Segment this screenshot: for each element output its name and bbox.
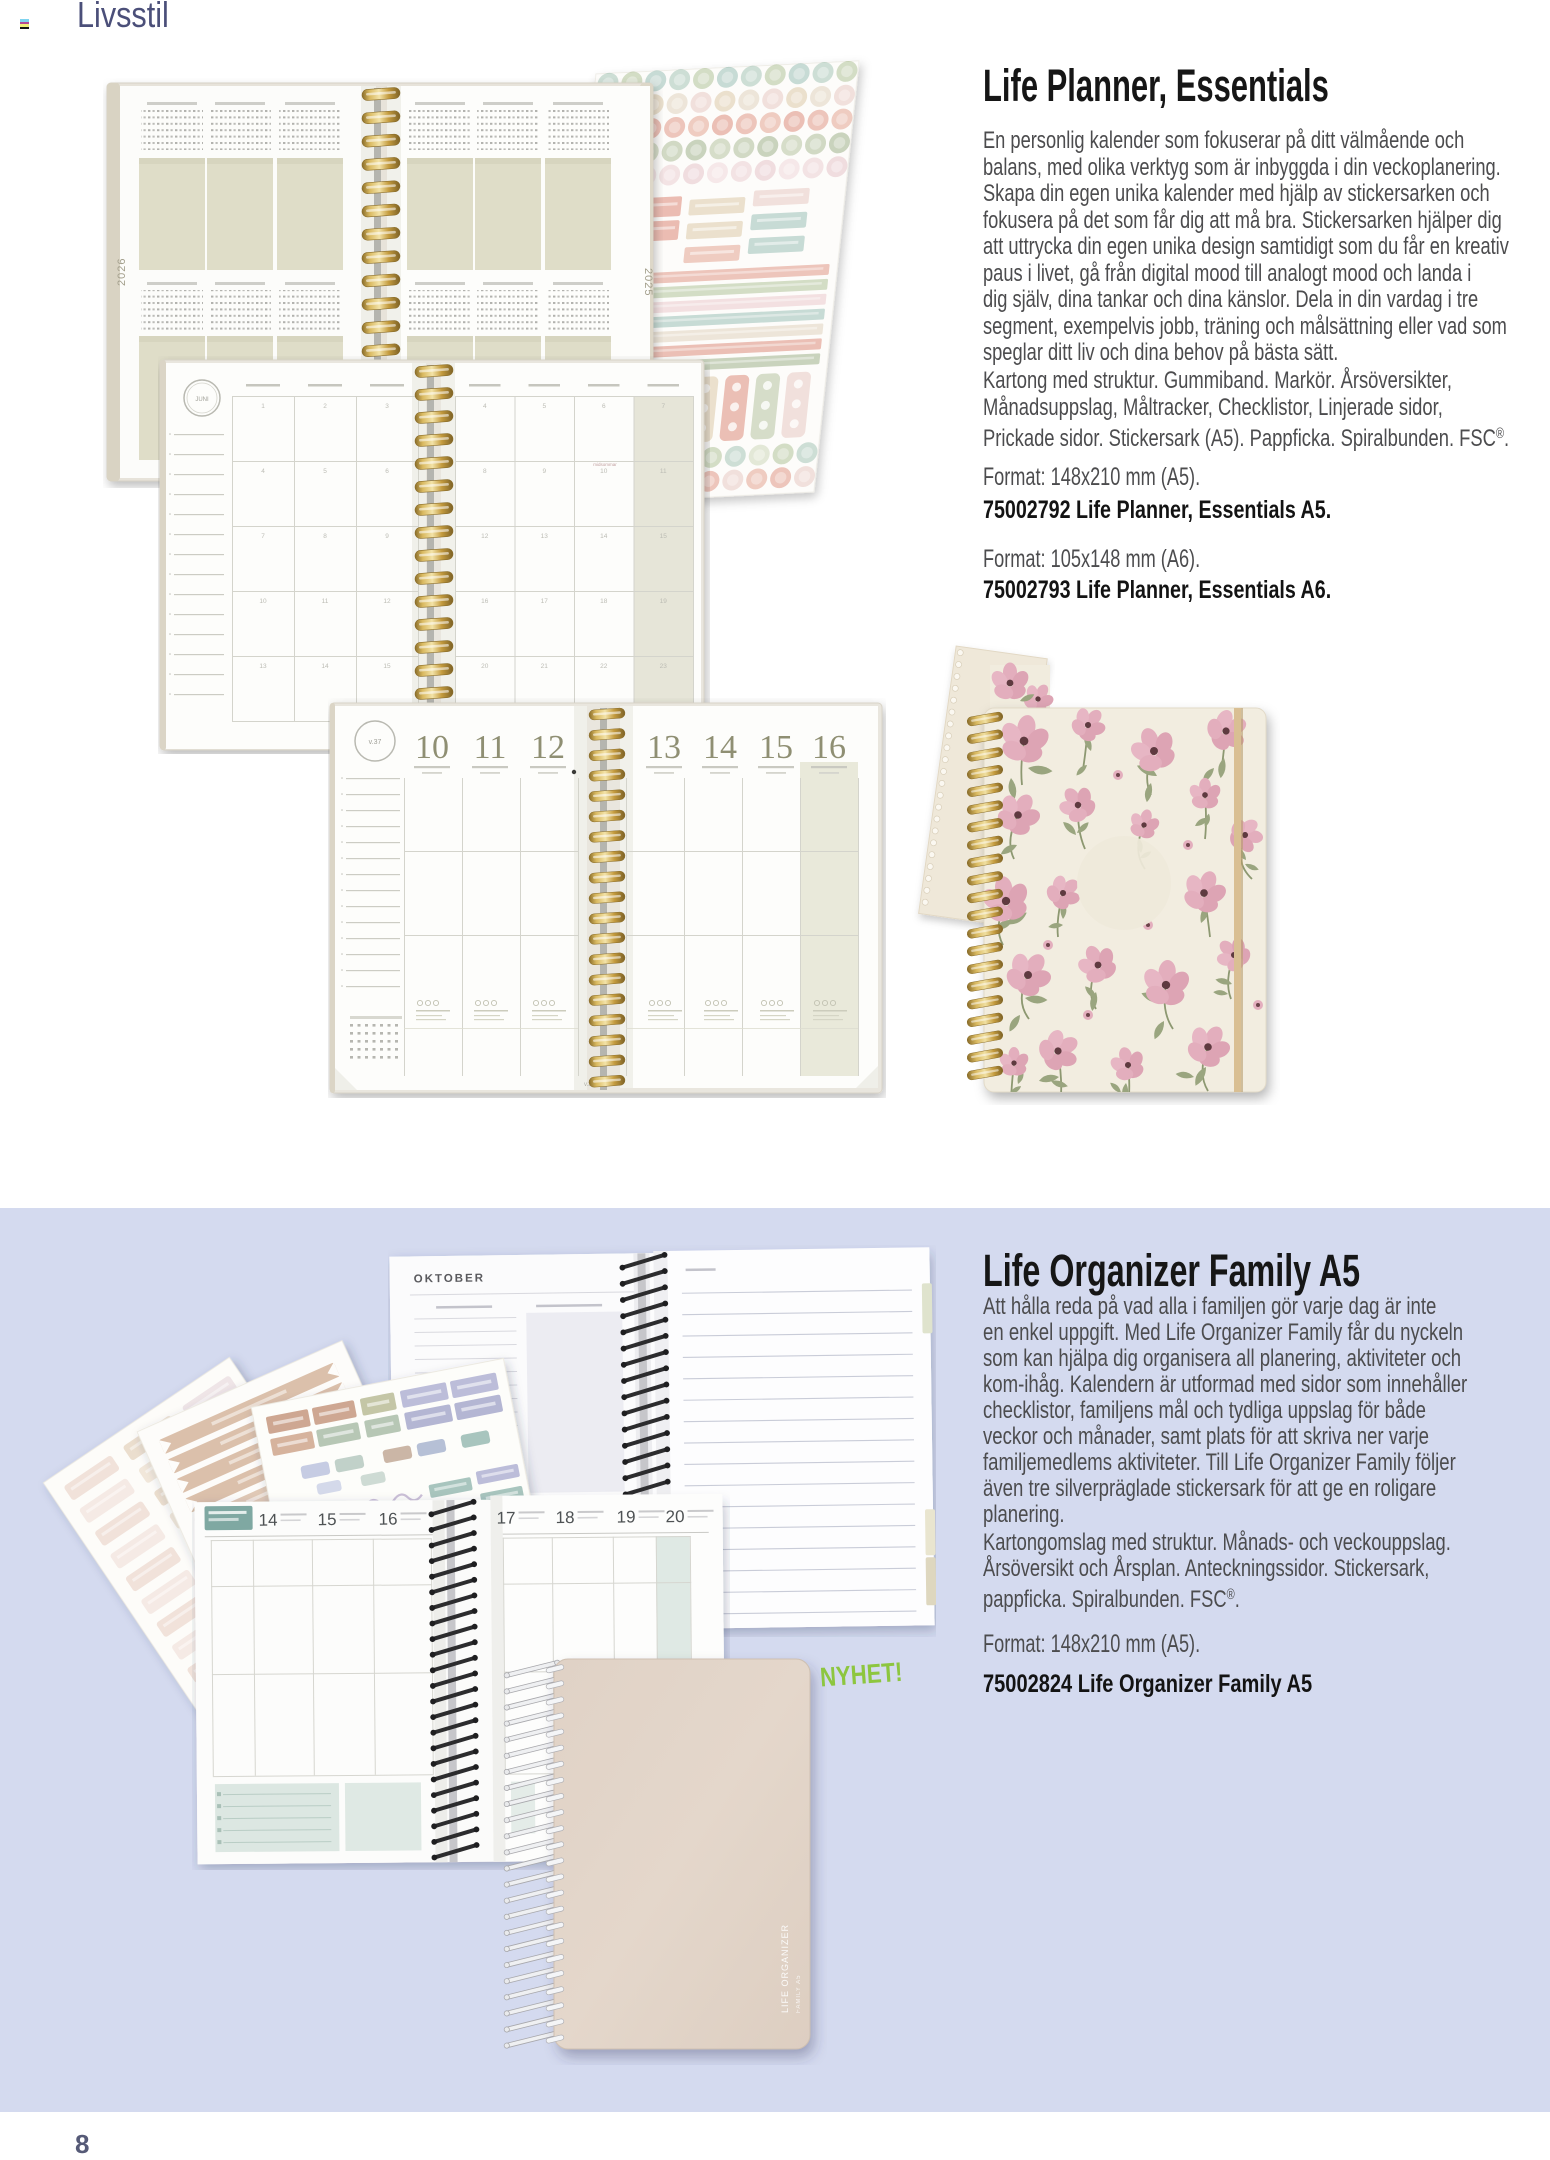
svg-text:14: 14 <box>600 533 608 540</box>
svg-text:9: 9 <box>385 533 389 540</box>
svg-text:OKTOBER: OKTOBER <box>414 1272 485 1285</box>
svg-text:14: 14 <box>259 1511 278 1530</box>
svg-text:5: 5 <box>542 403 546 410</box>
svg-text:9: 9 <box>542 468 546 475</box>
svg-text:6: 6 <box>602 403 606 410</box>
svg-text:LIFE ORGANIZER: LIFE ORGANIZER <box>780 1924 790 2013</box>
svg-text:15: 15 <box>318 1510 337 1529</box>
svg-text:23: 23 <box>660 663 668 670</box>
svg-text:14: 14 <box>703 729 737 766</box>
svg-text:5: 5 <box>323 468 327 475</box>
svg-text:13: 13 <box>259 663 267 670</box>
svg-text:2026: 2026 <box>116 258 128 286</box>
svg-text:16: 16 <box>379 1510 398 1529</box>
svg-text:18: 18 <box>600 598 608 605</box>
svg-text:10: 10 <box>259 598 267 605</box>
svg-text:14: 14 <box>321 663 329 670</box>
svg-text:3: 3 <box>385 403 389 410</box>
svg-text:FAMILY A5: FAMILY A5 <box>796 1975 802 2013</box>
svg-text:6: 6 <box>385 468 389 475</box>
svg-text:8: 8 <box>323 533 327 540</box>
svg-text:17: 17 <box>497 1509 516 1528</box>
svg-text:18: 18 <box>556 1508 575 1527</box>
svg-text:16: 16 <box>812 729 846 766</box>
svg-text:12: 12 <box>383 598 391 605</box>
svg-text:15: 15 <box>759 729 793 766</box>
svg-text:11: 11 <box>322 598 329 605</box>
svg-text:1: 1 <box>261 403 265 410</box>
svg-text:7: 7 <box>261 533 265 540</box>
svg-text:13: 13 <box>541 533 549 540</box>
svg-text:19: 19 <box>660 598 668 605</box>
svg-text:2: 2 <box>323 403 327 410</box>
svg-text:12: 12 <box>481 533 489 540</box>
svg-text:4: 4 <box>261 468 265 475</box>
svg-text:16: 16 <box>481 598 489 605</box>
svg-text:JUNI: JUNI <box>195 397 209 403</box>
svg-text:10: 10 <box>600 468 608 475</box>
svg-text:10: 10 <box>415 729 449 766</box>
svg-text:2025: 2025 <box>642 268 654 296</box>
svg-text:4: 4 <box>483 403 487 410</box>
svg-text:midsommar: midsommar <box>593 462 617 467</box>
svg-text:22: 22 <box>600 663 608 670</box>
svg-text:11: 11 <box>474 729 507 766</box>
svg-text:v.37: v.37 <box>369 739 382 746</box>
svg-text:15: 15 <box>660 533 668 540</box>
svg-text:8: 8 <box>483 468 487 475</box>
svg-text:7: 7 <box>661 403 665 410</box>
svg-text:11: 11 <box>660 468 667 475</box>
svg-text:20: 20 <box>665 1507 684 1526</box>
svg-text:21: 21 <box>541 663 549 670</box>
svg-text:12: 12 <box>531 729 565 766</box>
svg-text:20: 20 <box>481 663 489 670</box>
svg-text:13: 13 <box>647 729 681 766</box>
svg-text:17: 17 <box>541 598 549 605</box>
svg-text:19: 19 <box>617 1507 636 1526</box>
svg-text:15: 15 <box>383 663 391 670</box>
